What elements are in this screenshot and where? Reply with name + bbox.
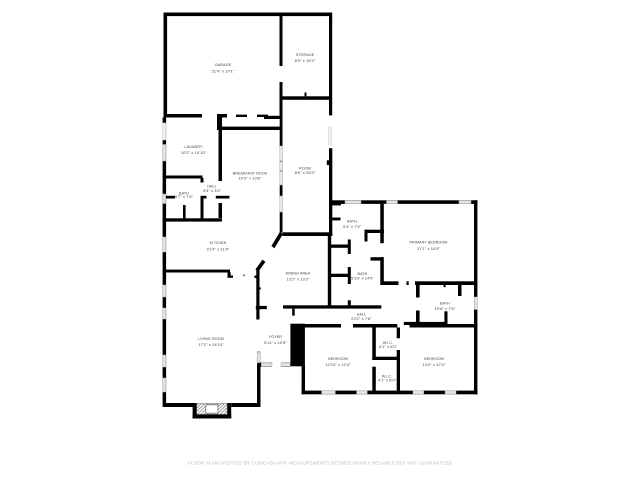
svg-text:10'9" x 13'6": 10'9" x 13'6" [239, 175, 262, 180]
svg-text:5'10" x 14'0": 5'10" x 14'0" [351, 275, 374, 280]
svg-text:21'4" x 19'1": 21'4" x 19'1" [212, 68, 235, 73]
svg-text:STORAGE: STORAGE [296, 53, 315, 57]
svg-text:10'6" x 7'6": 10'6" x 7'6" [435, 306, 456, 311]
svg-text:4'1" x 6'0": 4'1" x 6'0" [379, 344, 398, 349]
svg-text:DINING AREA: DINING AREA [286, 272, 311, 276]
svg-text:PRIMARY BEDROOM: PRIMARY BEDROOM [410, 241, 448, 245]
svg-text:13'2" x 13'3": 13'2" x 13'3" [287, 276, 310, 281]
svg-text:8'9" x 15'4": 8'9" x 15'4" [295, 58, 316, 63]
svg-text:17'2" x 24'10": 17'2" x 24'10" [198, 342, 224, 347]
svg-text:FOYER: FOYER [269, 335, 282, 339]
svg-text:5'7" x 7'6": 5'7" x 7'6" [175, 194, 194, 199]
svg-text:KITCHEN: KITCHEN [210, 241, 227, 245]
svg-text:12'10" x 12'4": 12'10" x 12'4" [325, 362, 351, 367]
svg-text:GARAGE: GARAGE [215, 63, 232, 67]
svg-text:23'2" x 7'6": 23'2" x 7'6" [351, 316, 372, 321]
svg-text:4'1" x 6'0": 4'1" x 6'0" [378, 377, 397, 382]
svg-text:21'4" x 11'8": 21'4" x 11'8" [207, 246, 230, 251]
svg-text:10'2" x 10'10": 10'2" x 10'10" [181, 150, 207, 155]
svg-text:LAUNDRY: LAUNDRY [184, 145, 203, 149]
svg-text:BATH: BATH [440, 301, 450, 305]
svg-text:LIVING ROOM: LIVING ROOM [198, 337, 223, 341]
svg-text:14'0" x 12'4": 14'0" x 12'4" [423, 362, 446, 367]
svg-text:9'4" x 7'5": 9'4" x 7'5" [343, 224, 362, 229]
svg-text:FLOOR PLAN CREATED BY CUBICASA: FLOOR PLAN CREATED BY CUBICASA APP. MEAS… [188, 461, 453, 466]
svg-text:17'1" x 14'9": 17'1" x 14'9" [417, 246, 440, 251]
svg-text:8'9" x 25'3": 8'9" x 25'3" [295, 170, 316, 175]
svg-text:BEDROOM: BEDROOM [424, 357, 444, 361]
svg-text:3'3" x 3'4": 3'3" x 3'4" [203, 188, 222, 193]
svg-text:BEDROOM: BEDROOM [328, 357, 348, 361]
svg-text:5'11" x 10'5": 5'11" x 10'5" [264, 340, 287, 345]
